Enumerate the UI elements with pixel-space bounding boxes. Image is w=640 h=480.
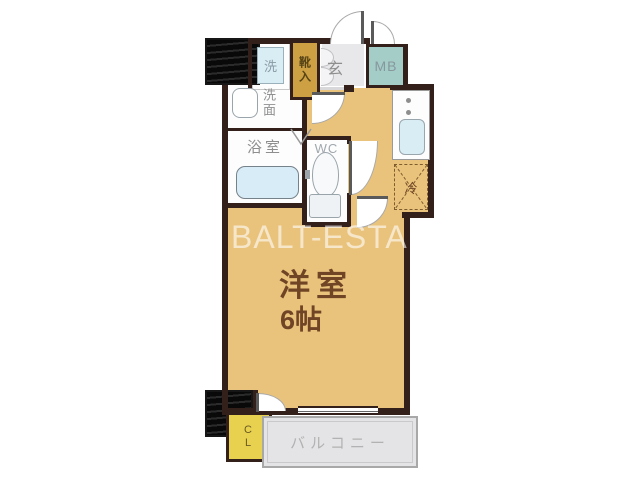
bathtub-icon [236,166,299,199]
wall-segment [248,38,252,90]
wall-segment [344,85,354,92]
balcony-label: バルコニー [262,420,418,464]
entrance-label: 玄 [318,55,352,79]
washbasin-icon [232,88,258,118]
watermark-text: BALT-ESTA [231,219,408,256]
burner-dot-icon [406,98,411,103]
entrance-door-leaf [361,11,364,44]
bathroom-label: 浴室 [228,136,302,157]
toilet-bowl-icon [312,152,339,197]
meter-box-door-leaf [371,21,374,44]
toilet-label: WC [305,141,348,156]
kitchen-counter [392,90,430,160]
washing-machine-label: 洗 [257,47,284,84]
balcony-window [298,406,378,415]
main-room-size: 6帖 [262,298,340,337]
toilet-tank-icon [309,194,341,218]
burner-dot-icon [406,110,411,115]
toilet-handle-icon [305,170,310,179]
entrance-door-arc [330,11,363,44]
meter-box-door-arc [373,21,395,44]
floorplan: 靴入 MB 冷 CL バルコニー 洗 [0,0,640,480]
washroom-door-leaf [312,92,345,95]
main-room-door-leaf [357,196,388,199]
closet-door-leaf [256,393,259,412]
watermark-clip: BALT-ESTA [228,217,408,261]
kitchen-sink-icon [399,119,425,155]
shoe-cabinet-label: 靴入 [296,46,314,94]
refrigerator-label: 冷 [394,164,428,210]
closet-label: CL [240,417,256,457]
toilet-door-leaf [349,141,352,195]
wall-segment [376,408,410,415]
washroom-label: 洗面 [259,88,278,128]
wall-segment [222,203,307,208]
meter-box-label: MB [366,44,406,88]
